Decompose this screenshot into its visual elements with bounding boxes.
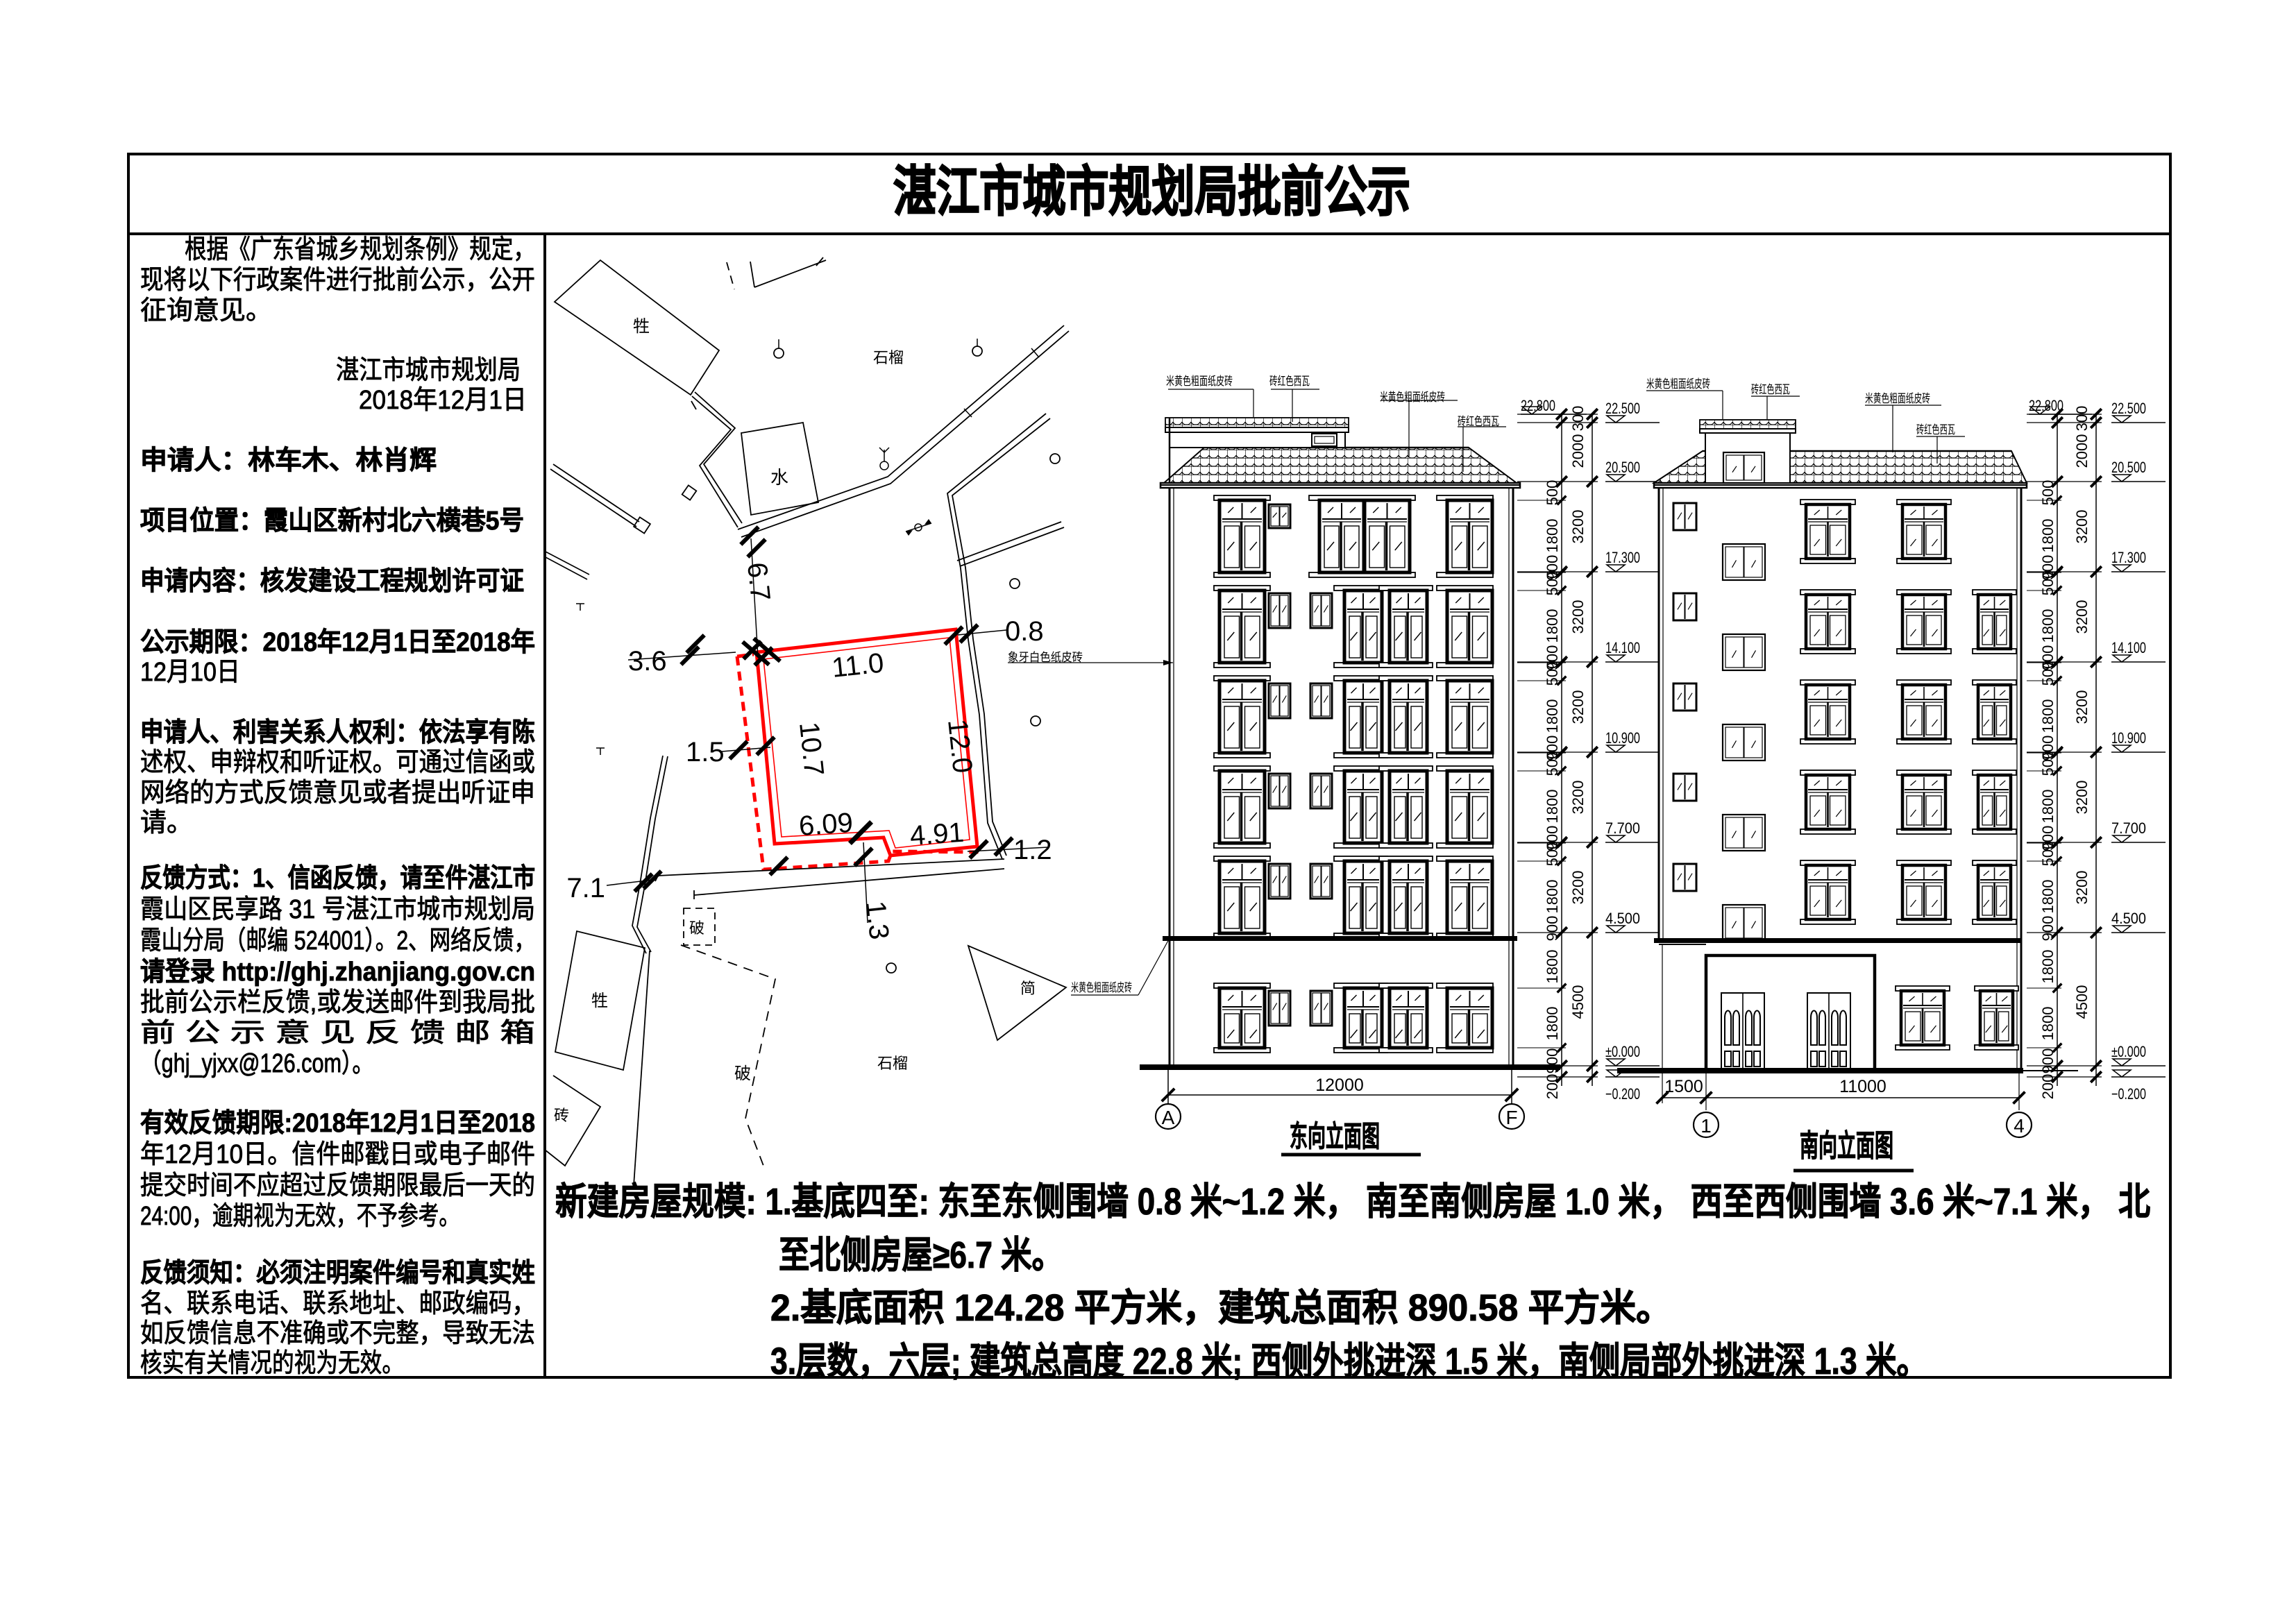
svg-text:如反馈信息不准确或不完整，导致无法: 如反馈信息不准确或不完整，导致无法 bbox=[140, 1319, 535, 1348]
svg-text:24:00，逾期视为无效，不予参考。: 24:00，逾期视为无效，不予参考。 bbox=[140, 1202, 459, 1231]
svg-text:砖红色西瓦: 砖红色西瓦 bbox=[1916, 423, 1955, 436]
svg-text:4500: 4500 bbox=[2073, 985, 2091, 1019]
svg-text:反馈方式：1、信函反馈，请至件湛江市: 反馈方式：1、信函反馈，请至件湛江市 bbox=[140, 864, 535, 893]
svg-text:3200: 3200 bbox=[2073, 781, 2091, 815]
svg-text:破: 破 bbox=[734, 1064, 751, 1083]
svg-text:前 公 示 意 见 反 馈 邮 箱: 前 公 示 意 见 反 馈 邮 箱 bbox=[140, 1019, 535, 1048]
svg-text:2.基底面积 124.28 平方米，建筑总面积 890.58: 2.基底面积 124.28 平方米，建筑总面积 890.58 平方米。 bbox=[770, 1287, 1672, 1329]
svg-text:1800: 1800 bbox=[1544, 950, 1561, 984]
svg-text:−0.200: −0.200 bbox=[1605, 1085, 1640, 1103]
svg-text:述权、申辩权和听证权。可通过信函或: 述权、申辩权和听证权。可通过信函或 bbox=[140, 748, 535, 777]
svg-text:申请内容：核发建设工程规划许可证: 申请内容：核发建设工程规划许可证 bbox=[140, 567, 524, 596]
svg-text:3200: 3200 bbox=[2073, 871, 2091, 905]
svg-text:1.5: 1.5 bbox=[686, 737, 725, 767]
svg-text:7.700: 7.700 bbox=[1605, 819, 1640, 837]
svg-text:4.500: 4.500 bbox=[1605, 910, 1640, 927]
svg-text:22.500: 22.500 bbox=[1605, 400, 1640, 417]
svg-text:22.500: 22.500 bbox=[2111, 400, 2146, 417]
svg-text:2000: 2000 bbox=[2073, 434, 2091, 468]
svg-text:1800: 1800 bbox=[1544, 609, 1561, 643]
svg-text:1800: 1800 bbox=[1544, 790, 1561, 824]
svg-text:20.500: 20.500 bbox=[2111, 459, 2146, 476]
svg-text:湛江市城市规划局批前公示: 湛江市城市规划局批前公示 bbox=[893, 161, 1410, 222]
svg-text:公示期限：2018年12月1日至2018年: 公示期限：2018年12月1日至2018年 bbox=[140, 628, 535, 657]
svg-text:1800: 1800 bbox=[1544, 699, 1561, 733]
svg-text:200: 200 bbox=[1544, 1074, 1561, 1100]
svg-text:有效反馈期限:2018年12月1日至2018: 有效反馈期限:2018年12月1日至2018 bbox=[140, 1109, 535, 1138]
svg-text:项目位置：霞山区新村北六横巷5号: 项目位置：霞山区新村北六横巷5号 bbox=[140, 507, 524, 536]
svg-text:20.500: 20.500 bbox=[1605, 459, 1640, 476]
svg-text:6.09: 6.09 bbox=[798, 808, 854, 842]
svg-text:1800: 1800 bbox=[2039, 609, 2057, 643]
svg-text:6.7: 6.7 bbox=[741, 561, 776, 602]
svg-text:米黄色粗面纸皮砖: 米黄色粗面纸皮砖 bbox=[1380, 391, 1445, 404]
svg-text:牲: 牲 bbox=[633, 317, 650, 336]
svg-text:霞山分局（邮编 524001）。2、网络反馈，: 霞山分局（邮编 524001）。2、网络反馈， bbox=[140, 926, 535, 955]
svg-text:1: 1 bbox=[1700, 1115, 1712, 1137]
svg-text:湛江市城市规划局: 湛江市城市规划局 bbox=[336, 356, 521, 385]
svg-text:10.900: 10.900 bbox=[2111, 729, 2146, 747]
svg-text:砖红色西瓦: 砖红色西瓦 bbox=[1458, 415, 1499, 428]
svg-text:3200: 3200 bbox=[1569, 600, 1587, 634]
svg-text:1800: 1800 bbox=[2039, 699, 2057, 733]
svg-text:1800: 1800 bbox=[2039, 950, 2057, 984]
svg-text:（ghj_yjxx@126.com）。: （ghj_yjxx@126.com）。 bbox=[140, 1049, 373, 1078]
svg-text:1800: 1800 bbox=[2039, 1007, 2057, 1041]
svg-text:500: 500 bbox=[1544, 751, 1561, 776]
svg-text:900: 900 bbox=[2039, 1048, 2057, 1074]
svg-text:1800: 1800 bbox=[2039, 880, 2057, 914]
svg-text:500: 500 bbox=[2039, 570, 2057, 596]
svg-text:反馈须知：必须注明案件编号和真实姓: 反馈须知：必须注明案件编号和真实姓 bbox=[140, 1259, 535, 1288]
svg-text:霞山区民享路 31 号湛江市城市规划局: 霞山区民享路 31 号湛江市城市规划局 bbox=[140, 895, 535, 924]
svg-text:1800: 1800 bbox=[1544, 1007, 1561, 1041]
svg-text:1800: 1800 bbox=[1544, 880, 1561, 914]
svg-text:请登录 http://ghj.zhanjiang.gov.c: 请登录 http://ghj.zhanjiang.gov.cn bbox=[140, 958, 535, 987]
svg-text:简: 简 bbox=[1020, 980, 1036, 997]
svg-text:500: 500 bbox=[1544, 661, 1561, 686]
svg-text:500: 500 bbox=[1544, 570, 1561, 596]
svg-text:±0.000: ±0.000 bbox=[1605, 1043, 1640, 1060]
svg-text:14.100: 14.100 bbox=[2111, 639, 2146, 656]
svg-text:12000: 12000 bbox=[1315, 1076, 1364, 1095]
svg-text:4500: 4500 bbox=[1569, 985, 1587, 1019]
svg-text:4.91: 4.91 bbox=[909, 817, 965, 851]
svg-text:现将以下行政案件进行批前公示，公开: 现将以下行政案件进行批前公示，公开 bbox=[140, 266, 535, 295]
svg-text:900: 900 bbox=[2039, 916, 2057, 942]
svg-text:17.300: 17.300 bbox=[1605, 549, 1640, 566]
svg-text:10.900: 10.900 bbox=[1605, 729, 1640, 747]
svg-text:砖红色西瓦: 砖红色西瓦 bbox=[1751, 383, 1790, 396]
svg-text:±0.000: ±0.000 bbox=[2111, 1043, 2146, 1060]
svg-text:3200: 3200 bbox=[1569, 510, 1587, 544]
svg-text:网络的方式反馈意见或者提出听证申: 网络的方式反馈意见或者提出听证申 bbox=[140, 779, 535, 808]
svg-text:0.8: 0.8 bbox=[1005, 616, 1044, 647]
svg-text:砖: 砖 bbox=[554, 1107, 569, 1124]
svg-text:10.7: 10.7 bbox=[793, 720, 829, 777]
svg-text:3200: 3200 bbox=[2073, 690, 2091, 724]
svg-text:东向立面图: 东向立面图 bbox=[1290, 1120, 1380, 1153]
svg-text:3200: 3200 bbox=[1569, 781, 1587, 815]
svg-text:南向立面图: 南向立面图 bbox=[1800, 1129, 1893, 1163]
svg-text:3200: 3200 bbox=[2073, 510, 2091, 544]
svg-text:2018年12月1日: 2018年12月1日 bbox=[359, 386, 527, 415]
svg-text:米黄色粗面纸皮砖: 米黄色粗面纸皮砖 bbox=[1646, 377, 1710, 391]
svg-text:12.0: 12.0 bbox=[942, 717, 978, 774]
svg-text:500: 500 bbox=[2039, 480, 2057, 506]
svg-text:3.6: 3.6 bbox=[628, 646, 667, 677]
svg-text:牲: 牲 bbox=[591, 992, 608, 1010]
svg-text:200: 200 bbox=[2039, 1074, 2057, 1100]
svg-text:900: 900 bbox=[1544, 916, 1561, 942]
svg-text:3200: 3200 bbox=[2073, 600, 2091, 634]
svg-text:F: F bbox=[1505, 1107, 1517, 1128]
svg-text:3.层数，六层; 建筑总高度 22.8 米; 西侧外挑进深: 3.层数，六层; 建筑总高度 22.8 米; 西侧外挑进深 1.5 米，南侧局部… bbox=[770, 1341, 1927, 1382]
svg-text:14.100: 14.100 bbox=[1605, 639, 1640, 656]
svg-text:破: 破 bbox=[689, 919, 704, 937]
svg-text:11.0: 11.0 bbox=[830, 647, 885, 683]
svg-text:17.300: 17.300 bbox=[2111, 549, 2146, 566]
svg-text:12月10日: 12月10日 bbox=[140, 658, 240, 687]
svg-text:批前公示栏反馈,或发送邮件到我局批: 批前公示栏反馈,或发送邮件到我局批 bbox=[140, 988, 535, 1017]
svg-text:1500: 1500 bbox=[1664, 1077, 1703, 1096]
svg-text:7.700: 7.700 bbox=[2111, 819, 2146, 837]
svg-text:500: 500 bbox=[1544, 480, 1561, 506]
svg-text:名、联系电话、联系地址、邮政编码，: 名、联系电话、联系地址、邮政编码， bbox=[140, 1289, 535, 1318]
svg-text:4.500: 4.500 bbox=[2111, 910, 2146, 927]
svg-text:300: 300 bbox=[1569, 406, 1587, 432]
svg-text:根据《广东省城乡规划条例》规定，: 根据《广东省城乡规划条例》规定， bbox=[185, 235, 535, 264]
svg-text:500: 500 bbox=[1544, 841, 1561, 867]
svg-text:3200: 3200 bbox=[1569, 871, 1587, 905]
svg-text:申请人、利害关系人权利：依法享有陈: 申请人、利害关系人权利：依法享有陈 bbox=[140, 718, 535, 747]
svg-text:核实有关情况的视为无效。: 核实有关情况的视为无效。 bbox=[140, 1349, 404, 1378]
svg-text:米黄色粗面纸皮砖: 米黄色粗面纸皮砖 bbox=[1071, 981, 1132, 994]
svg-text:4: 4 bbox=[2014, 1115, 2025, 1137]
svg-text:300: 300 bbox=[2073, 406, 2091, 432]
svg-text:500: 500 bbox=[2039, 751, 2057, 776]
svg-text:1.2: 1.2 bbox=[1013, 835, 1052, 865]
svg-text:1800: 1800 bbox=[1544, 519, 1561, 553]
svg-text:2000: 2000 bbox=[1569, 434, 1587, 468]
svg-text:米黄色粗面纸皮砖: 米黄色粗面纸皮砖 bbox=[1865, 392, 1930, 405]
svg-text:900: 900 bbox=[1544, 1048, 1561, 1074]
svg-text:申请人：林车木、林肖辉: 申请人：林车木、林肖辉 bbox=[140, 446, 437, 475]
svg-text:A: A bbox=[1162, 1107, 1175, 1128]
svg-text:7.1: 7.1 bbox=[566, 873, 605, 903]
svg-text:至北侧房屋≥6.7 米。: 至北侧房屋≥6.7 米。 bbox=[779, 1234, 1063, 1276]
svg-text:新建房屋规模: 1.基底四至: 东至东侧围墙 0.8 米~1: 新建房屋规模: 1.基底四至: 东至东侧围墙 0.8 米~1.2 米， 南至南侧… bbox=[555, 1181, 2150, 1223]
svg-text:1.3: 1.3 bbox=[860, 899, 895, 941]
svg-text:500: 500 bbox=[2039, 841, 2057, 867]
svg-text:11000: 11000 bbox=[1839, 1077, 1886, 1096]
svg-text:请。: 请。 bbox=[140, 808, 193, 838]
svg-text:1800: 1800 bbox=[2039, 790, 2057, 824]
svg-text:3200: 3200 bbox=[1569, 690, 1587, 724]
svg-text:年12月10日。信件邮戳日或电子邮件: 年12月10日。信件邮戳日或电子邮件 bbox=[140, 1140, 535, 1169]
svg-text:砖红色西瓦: 砖红色西瓦 bbox=[1269, 375, 1310, 388]
svg-text:水: 水 bbox=[770, 467, 788, 488]
svg-text:−0.200: −0.200 bbox=[2111, 1085, 2146, 1103]
svg-text:象牙白色纸皮砖: 象牙白色纸皮砖 bbox=[1008, 651, 1083, 664]
svg-text:米黄色粗面纸皮砖: 米黄色粗面纸皮砖 bbox=[1166, 375, 1233, 388]
svg-text:石榴: 石榴 bbox=[873, 349, 904, 366]
svg-text:1800: 1800 bbox=[2039, 519, 2057, 553]
svg-text:500: 500 bbox=[2039, 661, 2057, 686]
svg-text:石榴: 石榴 bbox=[877, 1055, 908, 1072]
svg-text:提交时间不应超过反馈期限最后一天的: 提交时间不应超过反馈期限最后一天的 bbox=[140, 1171, 535, 1200]
svg-text:22.800: 22.800 bbox=[1521, 397, 1555, 414]
svg-text:22.800: 22.800 bbox=[2029, 397, 2063, 414]
svg-text:征询意见。: 征询意见。 bbox=[140, 296, 272, 325]
